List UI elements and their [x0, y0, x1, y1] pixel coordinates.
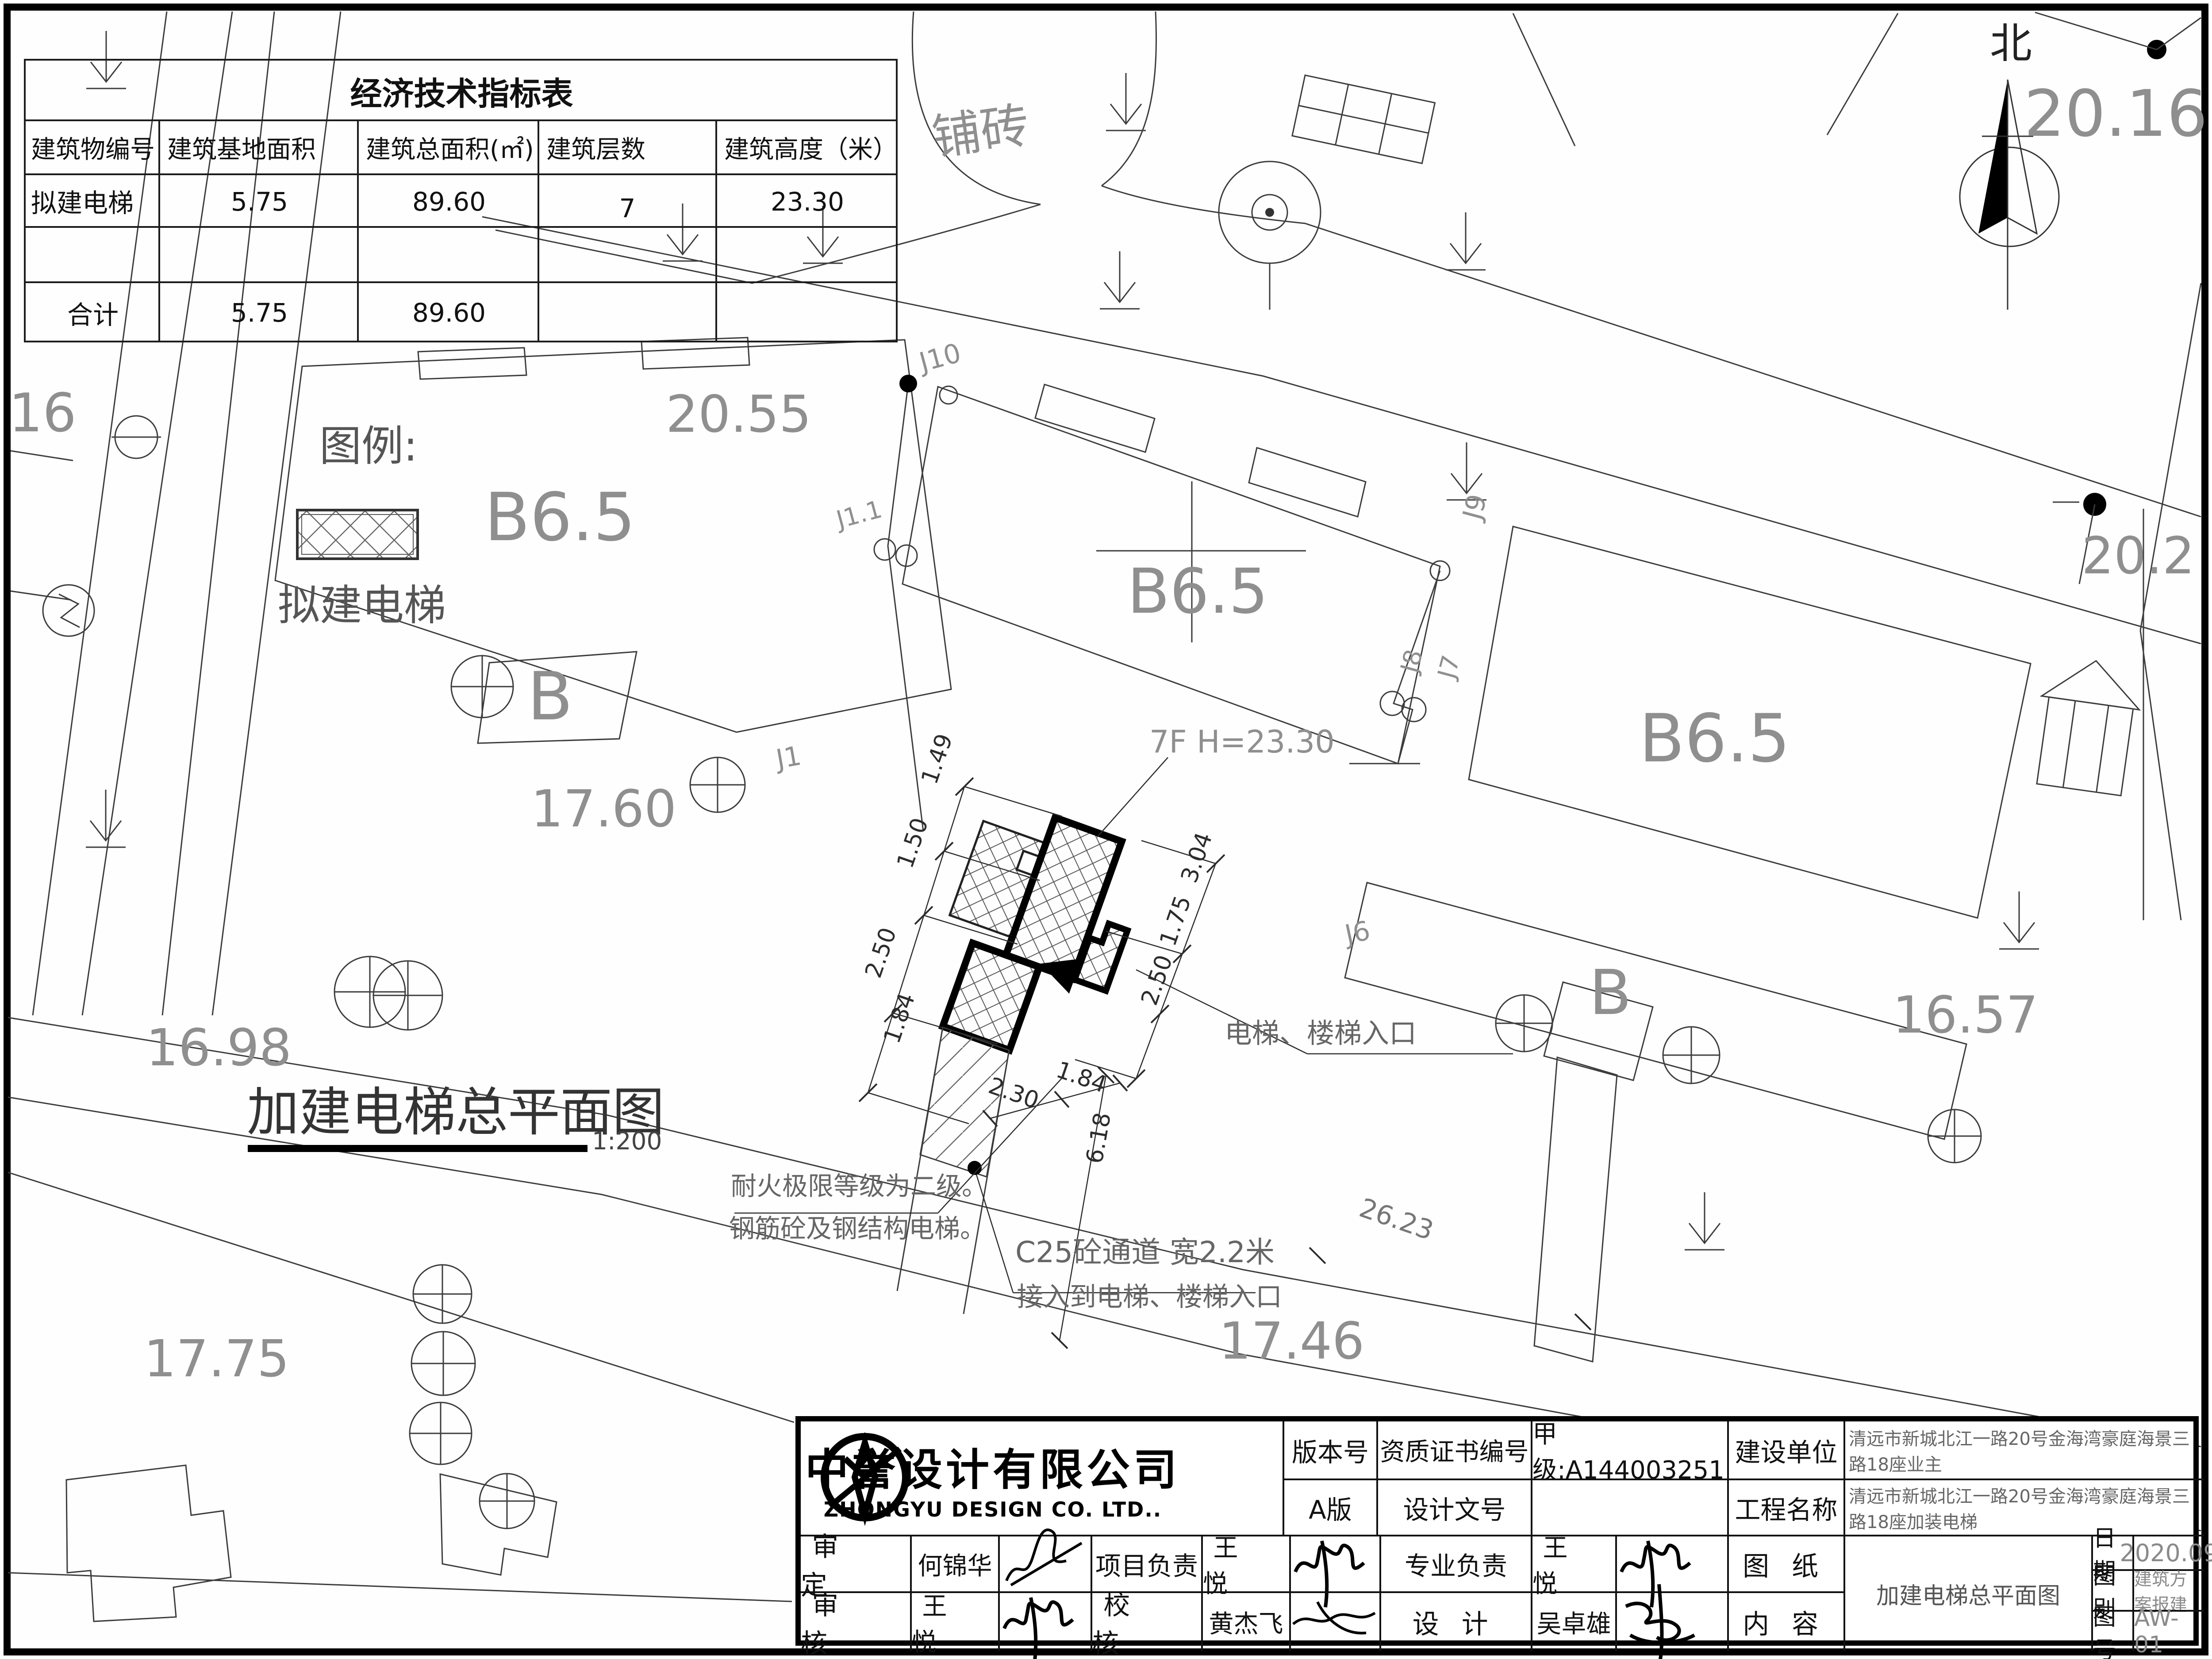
lead-name: 王悦 — [1532, 1528, 1615, 1600]
pm-name: 王悦 — [1203, 1528, 1289, 1600]
spot-elevation: 16 — [9, 387, 77, 440]
height-note: 7F H=23.30 — [1149, 726, 1335, 757]
drawing-content-cell: 加建电梯总平面图 — [1843, 1535, 2091, 1651]
review-label: 审核 — [801, 1584, 910, 1659]
spot-elevation: 16.98 — [146, 1023, 292, 1074]
building-label: B — [1589, 962, 1632, 1024]
signature-cell — [1289, 1591, 1379, 1651]
row-cell: 拟建电梯 — [24, 173, 158, 226]
col-header: 建筑物编号 — [24, 119, 158, 173]
person-name: 王悦 — [1201, 1535, 1289, 1591]
walkway — [897, 1027, 1009, 1314]
content-label: 内容 — [1732, 1603, 1841, 1641]
field-value: AW-01 — [2132, 1610, 2204, 1651]
field-value — [1531, 1479, 1727, 1535]
spot-elevation: 20.2 — [2081, 531, 2195, 582]
row-cell — [715, 226, 898, 283]
table-title: 经济技术指标表 — [24, 59, 898, 121]
col-header: 建筑总面积(㎡) — [357, 119, 538, 173]
company-logo-cell: 中誉设计有限公司 ZHONGYU DESIGN CO. LTD.. — [801, 1421, 1283, 1535]
legend-swatch — [297, 510, 418, 559]
boundary-point-label: J1 — [774, 742, 803, 773]
building-label: B6.5 — [1127, 561, 1268, 623]
company-logo-icon — [801, 1421, 929, 1535]
building-label: B — [527, 664, 573, 730]
col-header: 建筑层数 — [538, 119, 715, 173]
row-cell — [357, 226, 539, 283]
row-cell: 5.75 — [158, 281, 359, 342]
person-name: 王悦 — [1531, 1535, 1615, 1591]
signature-cell — [998, 1591, 1091, 1651]
north-label: 北 — [1990, 23, 2032, 65]
row-cell: 合计 — [24, 281, 160, 342]
row-cell — [715, 281, 898, 342]
field-label: 内容 — [1727, 1591, 1843, 1651]
field-label: 图号 — [2091, 1610, 2132, 1651]
field-label: 建设单位 — [1727, 1421, 1843, 1479]
field-value: 清远市新城北江一路20号金海湾豪庭海景三路18座加装电梯 — [1843, 1479, 2204, 1535]
person-name: 王悦 — [910, 1591, 998, 1651]
row-cell: 89.60 — [357, 173, 539, 228]
signature-cell — [1289, 1535, 1379, 1591]
fire-note: 钢筋砼及钢结构电梯。 — [729, 1216, 986, 1241]
row-cell — [24, 226, 160, 283]
spot-elevation: 17.75 — [144, 1334, 289, 1385]
spot-elevation: 17.46 — [1219, 1316, 1364, 1367]
field-label: 资质证书编号 — [1376, 1421, 1531, 1479]
field-label: 工程名称 — [1727, 1479, 1843, 1535]
passage-note: 接入到电梯、楼梯入口 — [1017, 1284, 1282, 1310]
spot-elevation: 20.16 — [2024, 82, 2208, 146]
person-name: 黄杰飞 — [1201, 1591, 1289, 1651]
legend-item-label: 拟建电梯 — [278, 585, 446, 627]
field-label: 专业负责 — [1379, 1535, 1531, 1591]
legend-title: 图例: — [319, 426, 418, 468]
check-label: 校核 — [1092, 1584, 1201, 1659]
fire-note: 耐火极限等级为二级。 — [731, 1173, 987, 1199]
field-label: 校核 — [1091, 1591, 1201, 1651]
boundary-point-label: J6 — [1343, 917, 1372, 948]
field-label: 审定 — [801, 1535, 910, 1591]
signature-cell — [998, 1535, 1091, 1591]
building-label: B6.5 — [1639, 706, 1790, 772]
field-label: 设计 — [1379, 1591, 1531, 1651]
field-label: 项目负责 — [1091, 1535, 1201, 1591]
economic-indicator-table: 经济技术指标表 建筑物编号 建筑基地面积 建筑总面积(㎡) 建筑层数 建筑高度（… — [24, 59, 898, 342]
entrance-note: 电梯、楼梯入口 — [1225, 1020, 1417, 1047]
field-label: 审核 — [801, 1591, 910, 1651]
col-header: 建筑基地面积 — [158, 119, 357, 173]
site-plan-canvas: 经济技术指标表 建筑物编号 建筑基地面积 建筑总面积(㎡) 建筑层数 建筑高度（… — [0, 0, 2212, 1659]
field-value: A版 — [1283, 1479, 1376, 1535]
building-label: B6.5 — [484, 484, 635, 551]
row-cell — [158, 226, 359, 283]
row-cell: 89.60 — [357, 281, 539, 342]
title-block: 中誉设计有限公司 ZHONGYU DESIGN CO. LTD.. 版本号 A版… — [795, 1416, 2199, 1646]
signature-cell — [1615, 1591, 1727, 1651]
field-value: 建筑方案报建 — [2132, 1569, 2204, 1610]
passage-note: C25砼通道 宽2.2米 — [1015, 1238, 1275, 1267]
field-label: 图纸 — [1727, 1535, 1843, 1591]
row-cell — [538, 226, 717, 283]
paving-label: 铺砖 — [929, 100, 1032, 162]
spot-elevation: 20.55 — [666, 389, 811, 440]
row-cell: 5.75 — [158, 173, 359, 228]
row-cell — [538, 281, 717, 342]
person-name: 吴卓雄 — [1531, 1591, 1615, 1651]
field-label: 设计文号 — [1376, 1479, 1531, 1535]
signature-cell — [1615, 1535, 1727, 1591]
row-cell: 23.30 — [715, 173, 898, 228]
design-label: 设计 — [1401, 1603, 1510, 1641]
review-name: 王悦 — [912, 1586, 998, 1658]
sheet-label: 图纸 — [1732, 1545, 1841, 1583]
spot-elevation: 17.60 — [531, 784, 676, 835]
person-name: 何锦华 — [910, 1535, 998, 1591]
field-label: 版本号 — [1283, 1421, 1376, 1479]
drawing-scale: 1:200 — [592, 1129, 662, 1153]
field-value: 2020.09 — [2132, 1535, 2204, 1569]
field-value: 甲级:A144003251 — [1531, 1421, 1727, 1479]
col-header: 建筑高度（米） — [715, 119, 896, 173]
spot-elevation: 16.57 — [1893, 990, 2038, 1041]
field-value: 清远市新城北江一路20号金海湾豪庭海景三路18座业主 — [1843, 1421, 2204, 1479]
row-cell: 7 — [538, 173, 715, 226]
